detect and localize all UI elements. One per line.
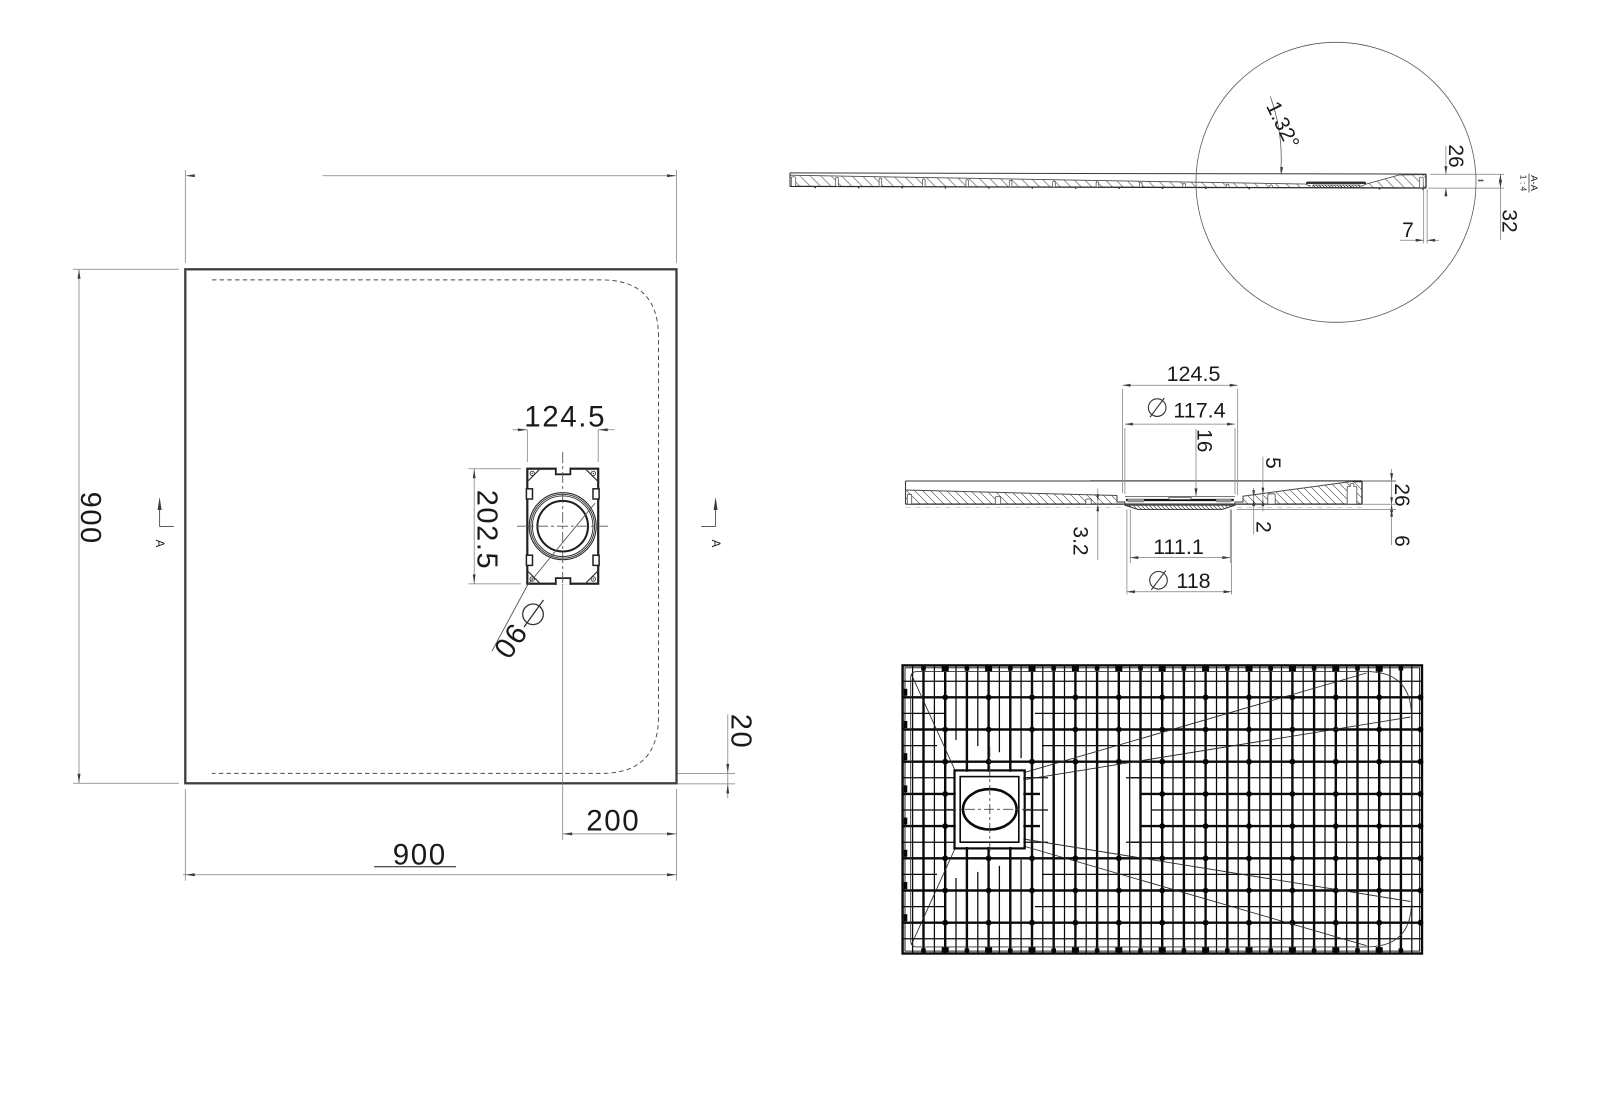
svg-text:7: 7 (1402, 219, 1414, 242)
svg-text:26: 26 (1390, 483, 1413, 506)
svg-text:A: A (709, 540, 721, 548)
svg-text:111.1: 111.1 (1153, 535, 1204, 559)
svg-text:200: 200 (586, 804, 640, 837)
svg-text:117.4: 117.4 (1173, 399, 1225, 423)
svg-text:900: 900 (74, 492, 106, 545)
svg-text:2: 2 (1252, 521, 1275, 533)
svg-text:3.2: 3.2 (1069, 526, 1092, 555)
svg-text:6: 6 (1390, 535, 1413, 547)
svg-text:118: 118 (1176, 569, 1210, 593)
svg-text:32: 32 (1498, 209, 1521, 232)
svg-text:A-A: A-A (1528, 175, 1539, 192)
svg-text:124.5: 124.5 (524, 400, 606, 433)
svg-text:26: 26 (1444, 144, 1467, 167)
svg-text:A: A (153, 540, 165, 548)
svg-text:202.5: 202.5 (470, 490, 502, 571)
svg-text:1 : 4: 1 : 4 (1519, 175, 1529, 192)
svg-text:124.5: 124.5 (1167, 362, 1221, 386)
svg-text:16: 16 (1193, 429, 1216, 452)
svg-text:5: 5 (1261, 457, 1284, 469)
svg-text:20: 20 (725, 714, 757, 749)
